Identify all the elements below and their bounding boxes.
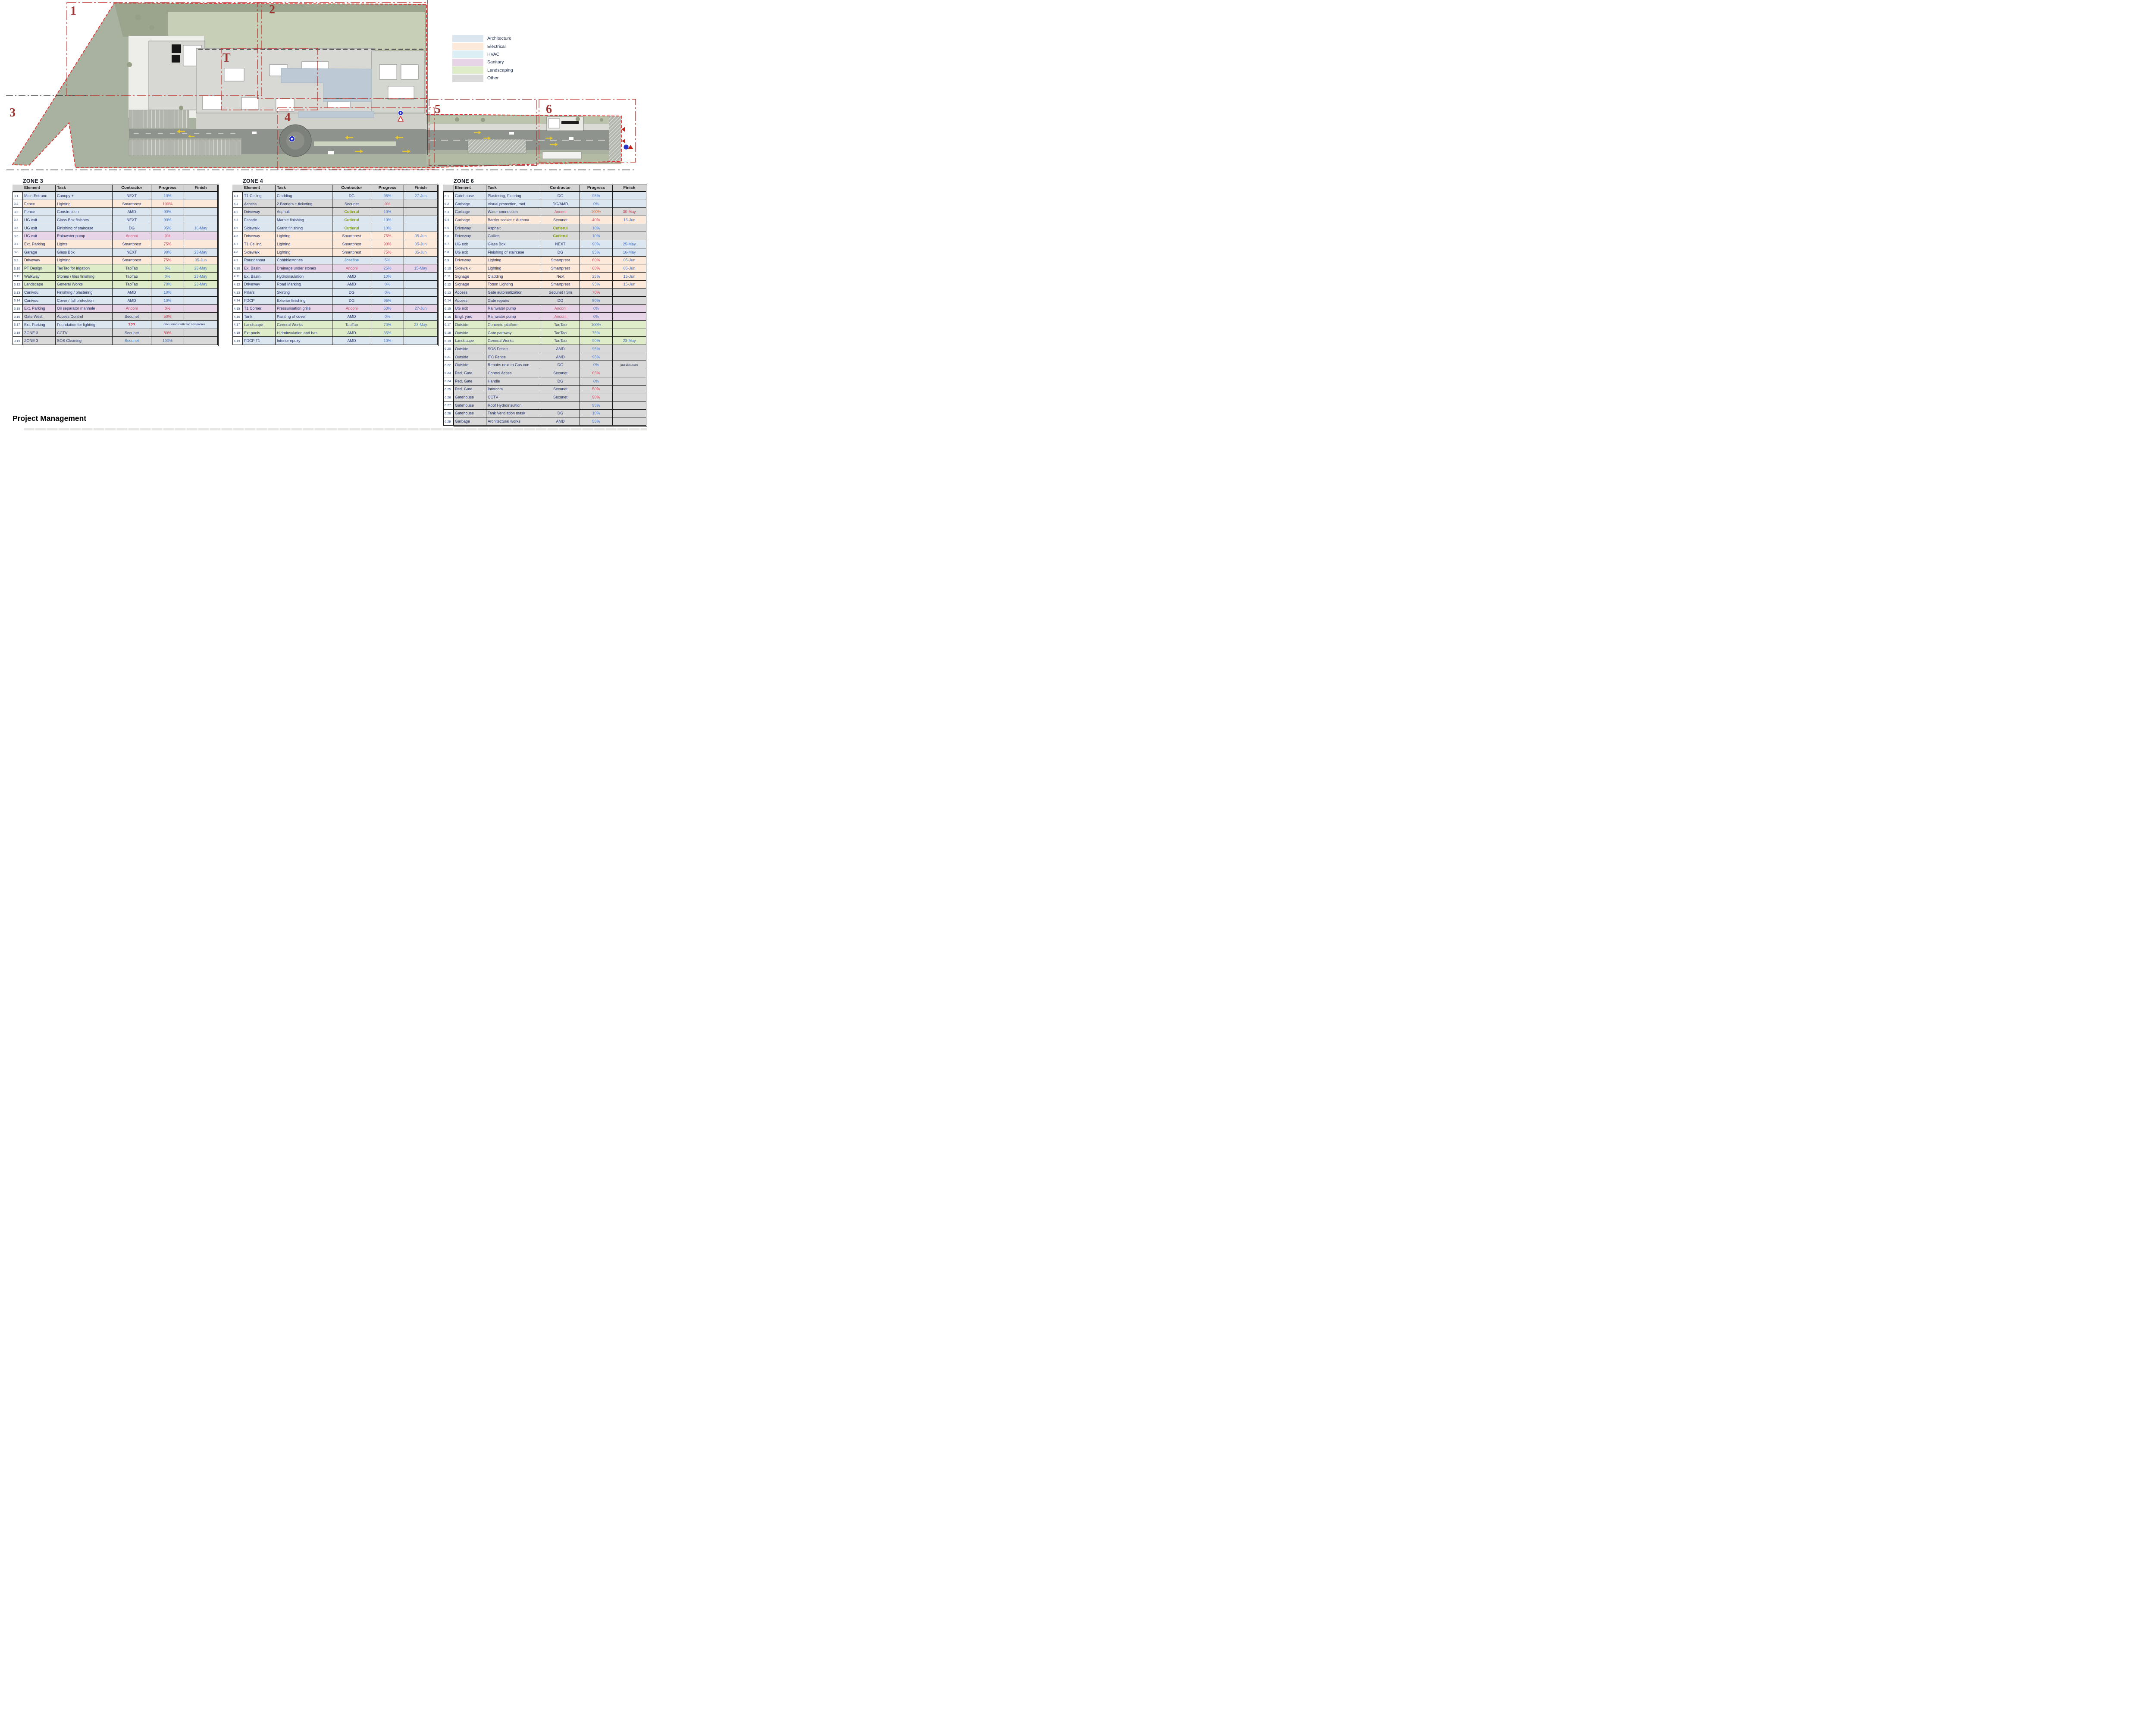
cell-finish (613, 329, 646, 337)
cell-task: Finishing of staircase (56, 224, 113, 232)
cell-element: Outside (454, 361, 486, 369)
row-number: 6.8 (443, 248, 454, 257)
cell-task: Water connection (486, 208, 541, 216)
cell-progress: 10% (580, 232, 613, 240)
cell-element: ZONE 3 (23, 337, 56, 345)
table-row: 6.27GatehouseRoof Hydroinsultion95% (443, 401, 646, 410)
cell-finish (613, 297, 646, 305)
table-header-row: ElementTaskContractorProgressFinish (232, 185, 438, 192)
cell-contractor: NEXT (113, 192, 151, 200)
cell-progress: 0% (580, 313, 613, 321)
legend-item: Electrical (452, 42, 513, 50)
zone-label-4: 4 (285, 111, 291, 124)
cell-task: Gate automatization (486, 289, 541, 297)
cell-element: UG exit (23, 216, 56, 224)
cell-contractor: Anconi (332, 305, 371, 313)
cell-finish (613, 369, 646, 377)
cell-contractor: TaoTao (332, 321, 371, 329)
cell-contractor: DG (541, 192, 580, 200)
cell-task: Lighting (486, 257, 541, 265)
cell-task: Cladding (486, 273, 541, 281)
cell-finish: 30-May (613, 208, 646, 216)
table-row: 4.13PillarsSkirtingDG0% (232, 289, 438, 297)
cell-task: Granit finishing (276, 224, 332, 232)
cell-progress: 100% (151, 200, 184, 208)
table-row: 3.15Ext. ParkingOil separator manholeAnc… (13, 305, 218, 313)
cell-element: Sidewalk (243, 248, 276, 257)
cell-contractor: DG (541, 410, 580, 418)
table-row: 4.16TankPainting of coverAMD0% (232, 313, 438, 321)
zone-label-2: 2 (269, 3, 275, 16)
cell-contractor: Cutierul (541, 224, 580, 232)
cell-element: Ext. Parking (23, 305, 56, 313)
cell-finish (613, 232, 646, 240)
row-number: 3.7 (13, 240, 23, 248)
cell-element: Ped. Gate (454, 386, 486, 394)
cell-progress: 5% (371, 257, 404, 265)
row-number: 6.26 (443, 393, 454, 401)
cell-element: Fence (23, 200, 56, 208)
cell-task: Lighting (486, 264, 541, 273)
cell-finish (184, 305, 218, 313)
cell-element: Ped. Gate (454, 369, 486, 377)
row-number: 4.12 (232, 281, 243, 289)
cell-finish: 27-Jun (404, 305, 438, 313)
cell-progress: 50% (151, 313, 184, 321)
cell-finish: 23-May (184, 248, 218, 257)
cell-contractor: Secunet (332, 200, 371, 208)
cell-progress: 50% (580, 386, 613, 394)
cell-element: Landscape (23, 281, 56, 289)
cell-progress: 10% (151, 192, 184, 200)
cell-task: Drainage under stones (276, 264, 332, 273)
cell-element: Sidewalk (454, 264, 486, 273)
cell-finish (613, 224, 646, 232)
row-number: 6.18 (443, 329, 454, 337)
cell-finish (184, 297, 218, 305)
legend-item: Landscaping (452, 66, 513, 74)
row-number: 4.17 (232, 321, 243, 329)
cell-progress: 10% (371, 224, 404, 232)
cell-task: Gullies (486, 232, 541, 240)
cell-contractor: DG/AMD (541, 200, 580, 208)
column-header: Contractor (541, 185, 580, 192)
row-number: 6.5 (443, 224, 454, 232)
cell-finish: just discussed (613, 361, 646, 369)
page: 1 2 3 4 5 6 T ArchitectureElectricalHVAC… (0, 0, 647, 431)
cell-progress: 10% (151, 297, 184, 305)
cell-contractor: DG (541, 377, 580, 386)
cell-element: UG exit (23, 224, 56, 232)
zone-label-6: 6 (546, 103, 552, 116)
table-row: 3.10PT DesignTaoTao for irigationTaoTao0… (13, 264, 218, 273)
cell-task: Asphalt (486, 224, 541, 232)
table-row: 4.14FDCPExterior finishingDG95% (232, 297, 438, 305)
table-row: 6.12SignageTotem LightingSmartprest95%15… (443, 281, 646, 289)
cell-element: Gatehouse (454, 393, 486, 401)
cell-progress: 0% (580, 200, 613, 208)
cell-element: Driveway (454, 224, 486, 232)
table-row: 6.18OutsideGate pathwayTaoTao75% (443, 329, 646, 337)
cell-task: Cladding (276, 192, 332, 200)
table-row: 4.2Access2 Barriers + ticketingSecunet0% (232, 200, 438, 208)
table-row: 6.21OutsideITC FenceAMD95% (443, 353, 646, 361)
row-number: 6.29 (443, 417, 454, 426)
cell-element: Ext. Parking (23, 240, 56, 248)
table-row: 6.16Engl. yardRainwater pumpAnconi0% (443, 313, 646, 321)
cell-task: Lighting (56, 200, 113, 208)
cell-task: Totem Lighting (486, 281, 541, 289)
cell-progress: 0% (151, 264, 184, 273)
row-number: 6.12 (443, 281, 454, 289)
table-row: 6.9DrivewayLightingSmartprest60%05-Jun (443, 257, 646, 265)
row-number: 4.4 (232, 216, 243, 224)
table-row: 4.8SidewalkLightingSmartprest75%05-Jun (232, 248, 438, 257)
cell-finish (404, 200, 438, 208)
table-row: 4.12DrivewayRoad MarkingAMD0% (232, 281, 438, 289)
cell-progress: 10% (371, 216, 404, 224)
cell-finish: 15-Jun (613, 216, 646, 224)
cell-element: Main Entranc (23, 192, 56, 200)
table-row: 3.11WalkwayStones / tiles finishingTaoTa… (13, 273, 218, 281)
table-row: 6.24Ped. GateHandleDG0% (443, 377, 646, 386)
cell-progress: 50% (371, 305, 404, 313)
cell-element: Fence (23, 208, 56, 216)
cell-task: SOS Fence (486, 345, 541, 353)
cell-element: Outside (454, 345, 486, 353)
cell-task: Marble finishing (276, 216, 332, 224)
row-number: 6.25 (443, 386, 454, 394)
cell-element: Walkway (23, 273, 56, 281)
table-row: 4.3DrivewayAsphaltCutierul10% (232, 208, 438, 216)
cell-progress: 10% (371, 273, 404, 281)
zone-label-3: 3 (9, 106, 16, 119)
row-number: 3.19 (13, 337, 23, 345)
cell-finish: 15-May (404, 264, 438, 273)
row-number: 6.14 (443, 297, 454, 305)
gate-marker-icon (622, 139, 625, 143)
cell-contractor: Next (541, 273, 580, 281)
row-number: 6.7 (443, 240, 454, 248)
legend-swatch (452, 50, 483, 58)
table-row: 3.14CanivouCover / fall protectionAMD10% (13, 297, 218, 305)
cell-task: TaoTao for irigation (56, 264, 113, 273)
cell-element: Driveway (243, 208, 276, 216)
cell-element: Outside (454, 321, 486, 329)
cell-progress: 0% (371, 313, 404, 321)
cell-task: Barrier socket + Automa (486, 216, 541, 224)
cell-contractor: NEXT (113, 216, 151, 224)
cell-finish: 23-May (184, 281, 218, 289)
cell-contractor: DG (541, 248, 580, 257)
column-header: Finish (613, 185, 646, 192)
cell-element: Driveway (243, 232, 276, 240)
column-header: Finish (184, 185, 218, 192)
cell-element: Access (454, 297, 486, 305)
cell-progress: 65% (580, 369, 613, 377)
cell-element: Ext pools (243, 329, 276, 337)
cell-contractor: Secunet (541, 393, 580, 401)
row-number: 3.1 (13, 192, 23, 200)
cell-contractor: TaoTao (113, 281, 151, 289)
cell-task: Access Control (56, 313, 113, 321)
cell-element: Ext. Parking (23, 321, 56, 329)
cell-contractor: DG (541, 297, 580, 305)
gate-marker-icon (621, 127, 625, 132)
cell-task: Architectural works (486, 417, 541, 426)
cell-contractor: Secunet (541, 216, 580, 224)
legend-swatch (452, 75, 483, 82)
cell-element: Garbage (454, 216, 486, 224)
table-row: 4.4FacadeMarble finishingCutierul10% (232, 216, 438, 224)
table-row: 6.20OutsideSOS FenceAMD95% (443, 345, 646, 353)
legend-label: Electrical (483, 44, 506, 49)
row-number: 6.17 (443, 321, 454, 329)
legend-item: Architecture (452, 34, 513, 42)
cell-contractor: AMD (541, 353, 580, 361)
table-row: 6.14AccessGate repairsDG50% (443, 297, 646, 305)
cell-task: Exterior finishing (276, 297, 332, 305)
cell-element: Ex. Basin (243, 264, 276, 273)
table-row: 3.6UG exitRainwater pumpAnconi0% (13, 232, 218, 240)
row-number: 4.11 (232, 273, 243, 281)
cell-contractor: Cutierul (332, 216, 371, 224)
cell-progress: 95% (371, 192, 404, 200)
cell-task: Repairs next to Gas con (486, 361, 541, 369)
column-header: Contractor (113, 185, 151, 192)
cell-contractor: TaoTao (113, 264, 151, 273)
cell-task: Lighting (276, 240, 332, 248)
row-number: 3.11 (13, 273, 23, 281)
cell-progress: 75% (151, 240, 184, 248)
column-header: Element (243, 185, 276, 192)
cell-contractor: AMD (113, 208, 151, 216)
row-number: 3.3 (13, 208, 23, 216)
row-number: 6.9 (443, 257, 454, 265)
cell-contractor: NEXT (113, 248, 151, 257)
table-row: 3.19ZONE 3SOS CleaningSecunet100% (13, 337, 218, 345)
table-row: 3.9DrivewayLightingSmartprest75%05-Jun (13, 257, 218, 265)
column-header: Element (23, 185, 56, 192)
cell-finish (184, 208, 218, 216)
site-plan: 1 2 3 4 5 6 T (0, 0, 647, 177)
column-header: Progress (151, 185, 184, 192)
row-number: 6.4 (443, 216, 454, 224)
cell-element: Sidewalk (243, 224, 276, 232)
table-row: 6.22OutsideRepairs next to Gas conDG0%ju… (443, 361, 646, 369)
cell-progress: 10% (151, 289, 184, 297)
row-number: 6.27 (443, 401, 454, 410)
cell-task: Construction (56, 208, 113, 216)
legend-item: Sanitary (452, 58, 513, 66)
cell-finish: 05-Jun (404, 240, 438, 248)
table-row: 4.6DrivewayLightingSmartprest75%05-Jun (232, 232, 438, 240)
cell-task: Hidroinsulation and bas (276, 329, 332, 337)
cell-element: ZONE 3 (23, 329, 56, 337)
bottom-edge-strip (24, 428, 647, 430)
legend: ArchitectureElectricalHVACSanitaryLandsc… (452, 34, 513, 82)
cell-element: Garbage (454, 200, 486, 208)
table-row: 4.5SidewalkGranit finishingCutierul10% (232, 224, 438, 232)
table-header-row: ElementTaskContractorProgressFinish (443, 185, 646, 192)
row-number: 6.3 (443, 208, 454, 216)
row-number: 6.23 (443, 369, 454, 377)
cell-progress: 100% (151, 337, 184, 345)
row-number: 3.17 (13, 321, 23, 329)
cell-contractor: Secunet (113, 329, 151, 337)
table-row: 6.17OutsideConcrete platformTaoTao100% (443, 321, 646, 329)
cell-task: Cover / fall protection (56, 297, 113, 305)
cell-task: Lights (56, 240, 113, 248)
cell-element: Gatehouse (454, 401, 486, 410)
cell-finish: 05-Jun (184, 257, 218, 265)
cell-task: CCTV (56, 329, 113, 337)
cell-finish (613, 410, 646, 418)
cell-finish (613, 401, 646, 410)
cell-element: Signage (454, 281, 486, 289)
cell-progress: 95% (580, 345, 613, 353)
table-row: 6.6DrivewayGulliesCutierul10% (443, 232, 646, 240)
row-number: 4.8 (232, 248, 243, 257)
column-header: Task (486, 185, 541, 192)
cell-task: Oil separator manhole (56, 305, 113, 313)
cell-element: FDCP T1 (243, 337, 276, 345)
cell-element: Roundabout (243, 257, 276, 265)
legend-swatch (452, 59, 483, 66)
cell-progress: 90% (151, 216, 184, 224)
table-row: 4.9RoundaboutCobbblestonesJosefine5% (232, 257, 438, 265)
cell-finish: 23-May (613, 337, 646, 345)
row-number: 3.2 (13, 200, 23, 208)
cell-finish (184, 200, 218, 208)
cell-element: Canivou (23, 297, 56, 305)
cell-progress: 95% (580, 401, 613, 410)
row-number: 6.19 (443, 337, 454, 345)
zone-table-title: ZONE 4 (243, 178, 438, 185)
cell-contractor (541, 401, 580, 410)
cell-contractor: AMD (332, 281, 371, 289)
cell-contractor: DG (541, 361, 580, 369)
row-number: 4.1 (232, 192, 243, 200)
cell-contractor: AMD (541, 345, 580, 353)
cell-task: Foundation for lighting (56, 321, 113, 329)
cell-element: Driveway (23, 257, 56, 265)
cell-task: Glass Box (56, 248, 113, 257)
table-row: 4.15T1 CornerPressurisation grilleAnconi… (232, 305, 438, 313)
cell-task: Canopy + (56, 192, 113, 200)
cell-finish: 05-Jun (404, 248, 438, 257)
cell-progress: 70% (151, 281, 184, 289)
cell-element: T1 Ceiling (243, 192, 276, 200)
table-row: 3.13CanivouFinishing / plasteringAMD10% (13, 289, 218, 297)
cell-task: Finishing / plastering (56, 289, 113, 297)
cell-progress: 50% (580, 297, 613, 305)
cell-progress: 60% (580, 264, 613, 273)
row-number: 6.28 (443, 410, 454, 418)
cell-finish (404, 289, 438, 297)
cell-finish (404, 281, 438, 289)
cell-contractor: Secunet / Sm (541, 289, 580, 297)
cell-finish (613, 386, 646, 394)
column-header: Progress (371, 185, 404, 192)
cell-finish (404, 337, 438, 345)
column-header: Task (276, 185, 332, 192)
cell-task: Rainwater pump (486, 313, 541, 321)
cell-contractor: AMD (332, 329, 371, 337)
column-header: Finish (404, 185, 438, 192)
row-number: 6.21 (443, 353, 454, 361)
cell-finish: 23-May (184, 264, 218, 273)
valve-icon (624, 144, 629, 150)
legend-label: HVAC (483, 52, 499, 57)
cell-task: Interior epoxy (276, 337, 332, 345)
cell-contractor: AMD (113, 289, 151, 297)
table-row: 6.13AccessGate automatizationSecunet / S… (443, 289, 646, 297)
column-header: Contractor (332, 185, 371, 192)
cell-progress: 75% (371, 248, 404, 257)
cell-task: Asphalt (276, 208, 332, 216)
cell-contractor: AMD (113, 297, 151, 305)
row-number: 6.13 (443, 289, 454, 297)
row-number: 3.13 (13, 289, 23, 297)
table-row: 4.7T1 CeilingLightingSmartprest90%05-Jun (232, 240, 438, 248)
cell-contractor: Smartprest (113, 200, 151, 208)
table-row: 6.26GatehouseCCTVSecunet90% (443, 393, 646, 401)
row-number: 4.19 (232, 337, 243, 345)
row-number: 6.24 (443, 377, 454, 386)
cell-progress: 0% (151, 273, 184, 281)
cell-progress: 70% (580, 289, 613, 297)
page-title: Project Management (13, 414, 86, 423)
zone-table-zone-3: ZONE 3ElementTaskContractorProgressFinis… (13, 178, 218, 345)
cell-task: SOS Cleaning (56, 337, 113, 345)
table-row: 3.17Ext. ParkingFoundation for lighting?… (13, 321, 218, 329)
cell-progress: 55% (580, 417, 613, 426)
cell-contractor: Smartprest (332, 240, 371, 248)
row-number: 4.5 (232, 224, 243, 232)
cell-task: General Works (56, 281, 113, 289)
cell-contractor: Secunet (113, 313, 151, 321)
cell-element: Access (243, 200, 276, 208)
cell-task: General Works (276, 321, 332, 329)
cell-finish: 27-Jun (404, 192, 438, 200)
cell-contractor: DG (332, 289, 371, 297)
cell-progress: 70% (371, 321, 404, 329)
cell-element: Engl. yard (454, 313, 486, 321)
table-row: 3.5UG exitFinishing of staircaseDG95%16-… (13, 224, 218, 232)
cell-finish (613, 393, 646, 401)
cell-progress: 100% (580, 321, 613, 329)
cell-progress: 75% (151, 257, 184, 265)
cell-task: Gate repairs (486, 297, 541, 305)
cell-finish (184, 216, 218, 224)
table-row: 6.25Ped. GateIntercomSecunet50% (443, 386, 646, 394)
cell-task: Handle (486, 377, 541, 386)
cell-contractor: Anconi (541, 305, 580, 313)
table-row: 6.23Ped. GateControl AccesSecunet65% (443, 369, 646, 377)
cell-element: UG exit (23, 232, 56, 240)
cell-task: Lighting (276, 232, 332, 240)
table-row: 6.10SidewalkLightingSmartprest60%05-Jun (443, 264, 646, 273)
cell-finish (613, 313, 646, 321)
cell-element: Driveway (454, 232, 486, 240)
cell-progress: 10% (580, 224, 613, 232)
cell-progress: 0% (371, 200, 404, 208)
cell-contractor: Smartprest (113, 240, 151, 248)
zone-table-title: ZONE 3 (23, 178, 218, 185)
cell-element: Pillars (243, 289, 276, 297)
cell-contractor: Anconi (541, 208, 580, 216)
